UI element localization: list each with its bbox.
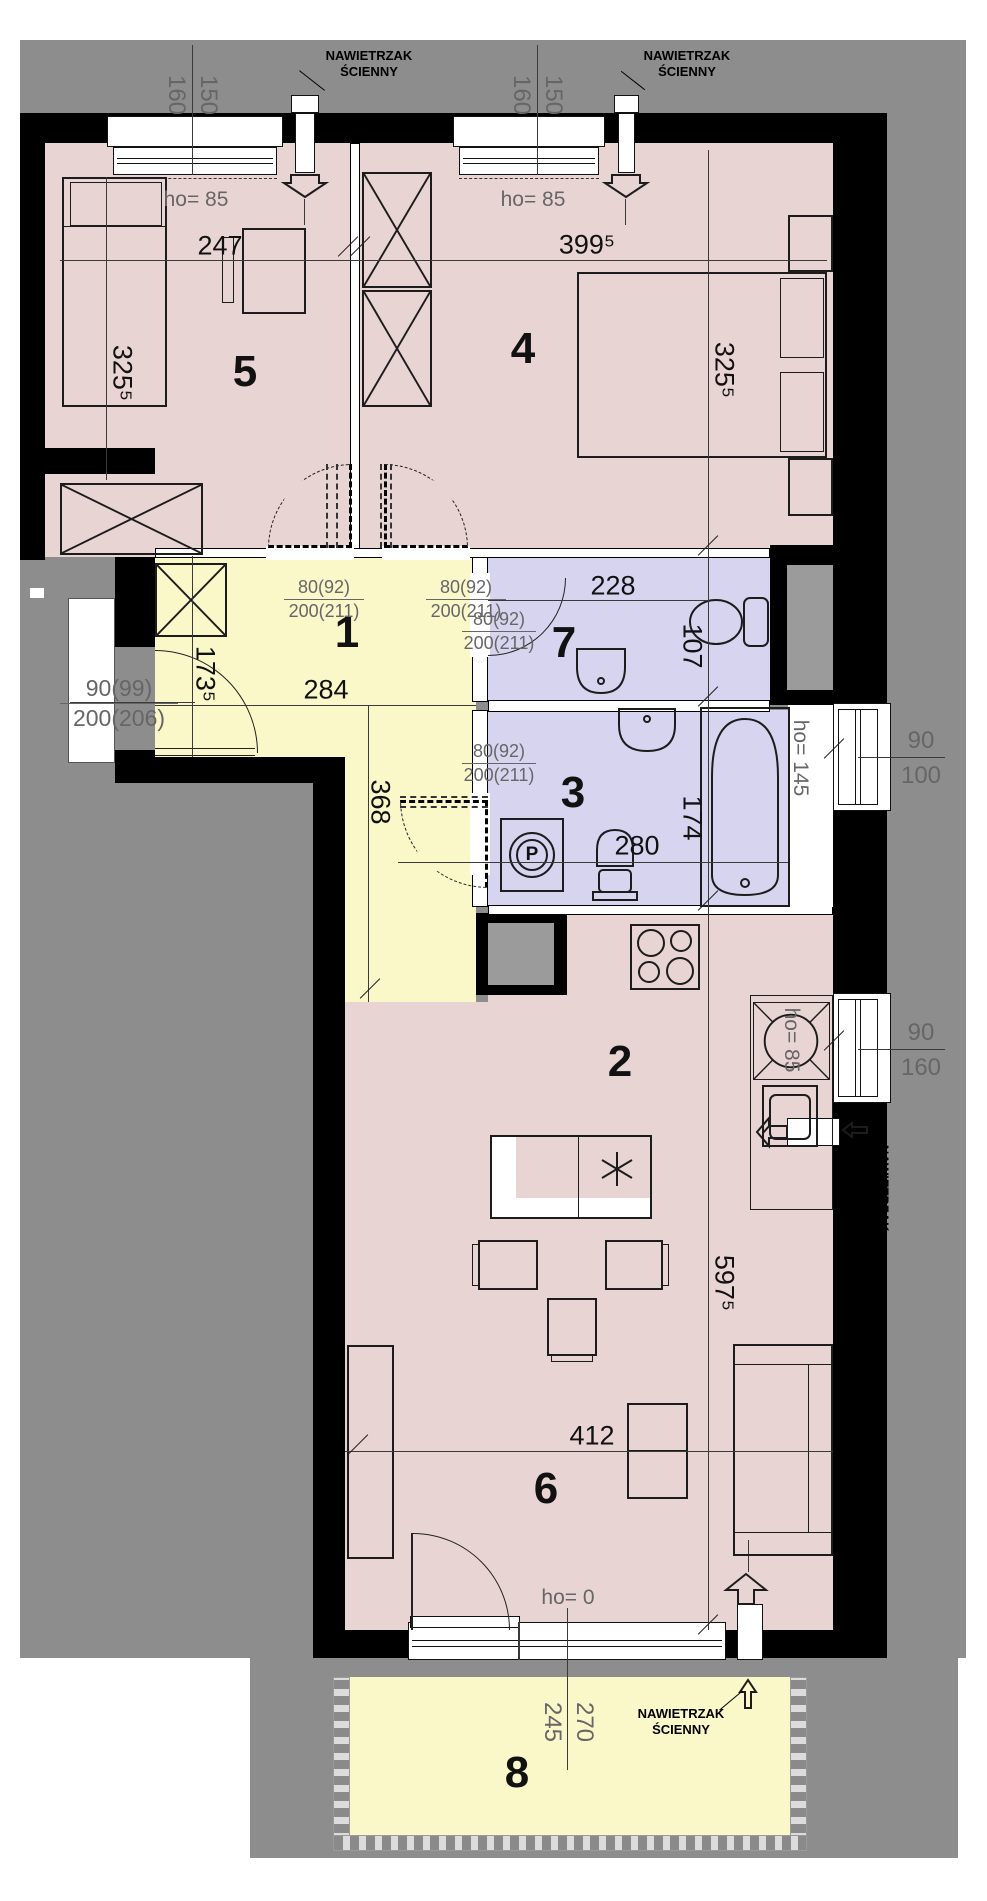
door-leaf-bath bbox=[400, 796, 488, 808]
bed-double-pillow-bottom bbox=[780, 372, 824, 452]
wall-left-main bbox=[313, 757, 345, 1658]
wall-hall-bottom bbox=[115, 757, 345, 783]
dim-living-depth: 597⁵ bbox=[709, 1255, 740, 1311]
bed-single-pillow bbox=[70, 182, 162, 226]
door-leaf-entry bbox=[155, 748, 255, 756]
wardrobe-bedroom-left bbox=[60, 483, 203, 555]
vent-label-right: NAWIETRZAK ŚCIENNY bbox=[859, 1141, 892, 1235]
wardrobe-hall bbox=[155, 563, 227, 637]
sill-bedroom-left: ho= 85 bbox=[164, 188, 229, 212]
door-leaf-bedroom-left bbox=[326, 464, 338, 548]
door-leaf-bedroom-right bbox=[380, 464, 392, 548]
dim-balcony-a: 245 bbox=[538, 1702, 566, 1742]
sofa-right-armrest-top bbox=[733, 1364, 833, 1365]
bed-double-pillow-top bbox=[780, 278, 824, 358]
dim-corridor: 368 bbox=[365, 779, 396, 824]
chair-bottom bbox=[547, 1298, 597, 1356]
room-number-kitchen-dining: 2 bbox=[608, 1037, 632, 1087]
dim-balcony-b: 270 bbox=[570, 1702, 598, 1742]
door-opening-bedroom-right bbox=[382, 546, 470, 560]
vent-arrow-below-icon bbox=[738, 1680, 758, 1710]
door-label-height: 200(206) bbox=[60, 704, 178, 733]
table-star-icon bbox=[598, 1150, 636, 1188]
dim-bath-depth: 174 bbox=[677, 795, 708, 840]
dimline-window-bath bbox=[858, 757, 945, 758]
wall-entry-upper bbox=[115, 557, 155, 647]
door-label-width: 80(92) bbox=[462, 740, 536, 764]
dimline-balcony bbox=[567, 1608, 568, 1770]
bathtub-icon bbox=[700, 707, 790, 907]
dimline-bedrooms-width bbox=[60, 260, 827, 261]
vent-arrow-bottom-icon bbox=[722, 1572, 770, 1606]
sill-bedroom-right: ho= 85 bbox=[501, 188, 566, 212]
nightstand-top bbox=[788, 215, 833, 272]
chair-right-back bbox=[661, 1244, 669, 1286]
wardrobe-bedroom-right-upper bbox=[362, 172, 432, 288]
dining-table-highlight-h bbox=[492, 1198, 650, 1217]
vent-stem-top-left bbox=[304, 199, 305, 225]
sofa-right-armrest-bottom bbox=[733, 1532, 833, 1533]
window-bedroom-right-outer bbox=[453, 116, 605, 147]
dim-bedroom-left-width: 247 bbox=[197, 231, 242, 262]
dimline-corridor bbox=[368, 705, 369, 1002]
window-bedroom-left-glazing bbox=[117, 158, 273, 164]
door-label-bedroom-left: 80(92) 200(211) bbox=[284, 576, 364, 622]
window-bedroom-left-outer bbox=[107, 116, 283, 147]
dim-window-bath-height: 90 bbox=[908, 727, 935, 755]
dim-window-kitchen-width: 160 bbox=[901, 1054, 941, 1082]
room-number-bedroom-left: 5 bbox=[233, 347, 257, 397]
vent-label-top-left: NAWIETRZAK ŚCIENNY bbox=[322, 48, 416, 81]
sink-bath-icon bbox=[615, 705, 679, 755]
desk bbox=[242, 228, 306, 314]
door-opening-bedroom-left bbox=[266, 546, 354, 560]
sofa-right bbox=[733, 1344, 833, 1556]
room-balcony bbox=[348, 1677, 790, 1835]
dimline-window-left bbox=[192, 45, 193, 175]
vent-stem-top-right bbox=[625, 199, 626, 225]
dim-window-kitchen-height: 90 bbox=[908, 1019, 935, 1047]
door-label-width: 80(92) bbox=[462, 608, 536, 632]
dim-hall-depth: 173⁵ bbox=[190, 646, 221, 702]
dim-living-width: 412 bbox=[569, 1421, 614, 1452]
shaft-wc bbox=[787, 565, 833, 690]
vent-bottom bbox=[737, 1604, 763, 1660]
bed-single-blanket-line bbox=[62, 226, 167, 227]
dim-wc-width: 228 bbox=[590, 571, 635, 602]
sofa-right-back-line bbox=[808, 1364, 809, 1532]
dimline-bath-width bbox=[398, 862, 788, 863]
door-label-bath: 80(92) 200(211) bbox=[462, 740, 536, 786]
door-label-height: 200(211) bbox=[284, 600, 364, 623]
sill-balcony-door: ho= 0 bbox=[541, 1586, 594, 1610]
dining-table-divider bbox=[578, 1137, 579, 1217]
floor-plan: P bbox=[0, 0, 987, 1901]
room-number-wc: 7 bbox=[552, 618, 576, 668]
room-number-living: 6 bbox=[534, 1464, 558, 1514]
door-label-height: 200(211) bbox=[462, 764, 536, 787]
wardrobe-bedroom-right-lower bbox=[362, 290, 432, 407]
wall-right bbox=[833, 113, 887, 1658]
dim-window-right-width: 150 bbox=[539, 75, 567, 115]
sofa-left bbox=[347, 1345, 394, 1559]
balcony-unit-mullion bbox=[518, 1622, 520, 1660]
room-number-balcony: 8 bbox=[505, 1748, 529, 1798]
kitchen-sink-icon bbox=[762, 1085, 818, 1147]
door-label-entry: 90(99) 200(206) bbox=[60, 674, 178, 733]
vent-arrow-right-outer-icon bbox=[842, 1122, 868, 1138]
wall-left-top bbox=[20, 113, 45, 560]
wall-left-pier bbox=[20, 448, 155, 474]
vent-arrow-top-left-icon bbox=[283, 173, 327, 199]
dimline-window-kitchen bbox=[858, 1049, 945, 1050]
nightstand-bottom bbox=[788, 458, 833, 516]
shaft-kitchen bbox=[488, 923, 554, 985]
dim-wc-depth: 107 bbox=[677, 623, 708, 668]
chair-right bbox=[605, 1240, 663, 1290]
balcony-railing-left bbox=[333, 1677, 350, 1850]
window-kitchen-glazing bbox=[855, 999, 861, 1097]
dim-bedroom-left-depth: 325⁵ bbox=[107, 345, 138, 401]
sill-kitchen: ho= 85 bbox=[779, 1008, 803, 1073]
door-label-width: 90(99) bbox=[60, 674, 178, 704]
wall-niche bbox=[30, 588, 44, 598]
balcony-railing-right bbox=[790, 1677, 807, 1850]
balcony-railing-bottom bbox=[333, 1835, 807, 1851]
vent-label-top-right: NAWIETRZAK ŚCIENNY bbox=[640, 48, 734, 81]
dim-window-bath-width: 100 bbox=[901, 762, 941, 790]
sink-wc-icon bbox=[573, 645, 629, 697]
door-label-height: 200(211) bbox=[462, 632, 536, 655]
chair-left bbox=[478, 1240, 538, 1290]
chair-bottom-back bbox=[551, 1354, 593, 1362]
room-number-bedroom-right: 4 bbox=[511, 324, 535, 374]
vent-arrow-top-right-icon bbox=[604, 173, 648, 199]
sill-bathtub: ho= 145 bbox=[788, 720, 812, 797]
window-bedroom-right-glazing bbox=[463, 158, 595, 164]
vent-top-right bbox=[618, 113, 635, 173]
dimline-window-right bbox=[537, 45, 538, 175]
dim-bedroom-right-width: 399⁵ bbox=[559, 230, 615, 261]
dimline-bedroom-left-depth bbox=[106, 177, 107, 480]
dim-window-left-width: 150 bbox=[194, 75, 222, 115]
vent-cap-top-left bbox=[291, 95, 319, 113]
dim-bath-width: 280 bbox=[614, 831, 659, 862]
vent-top-left bbox=[295, 113, 315, 173]
vent-label-bottom: NAWIETRZAK ŚCIENNY bbox=[634, 1706, 728, 1739]
chair-left-back bbox=[472, 1244, 480, 1286]
dim-bedroom-right-depth: 325⁵ bbox=[709, 342, 740, 398]
dim-hall-width: 284 bbox=[303, 675, 348, 706]
room-number-bathroom: 3 bbox=[561, 768, 585, 818]
door-label-width: 80(92) bbox=[426, 576, 506, 600]
door-label-wc: 80(92) 200(211) bbox=[462, 608, 536, 654]
vent-cap-top-right bbox=[614, 95, 639, 113]
dim-window-left-height: 160 bbox=[162, 75, 190, 115]
window-bedroom-right-sill bbox=[459, 178, 599, 179]
stove-icon bbox=[630, 924, 700, 990]
door-label-width: 80(92) bbox=[284, 576, 364, 600]
door-leaf-balcony bbox=[411, 1533, 413, 1630]
dim-window-right-height: 160 bbox=[507, 75, 535, 115]
